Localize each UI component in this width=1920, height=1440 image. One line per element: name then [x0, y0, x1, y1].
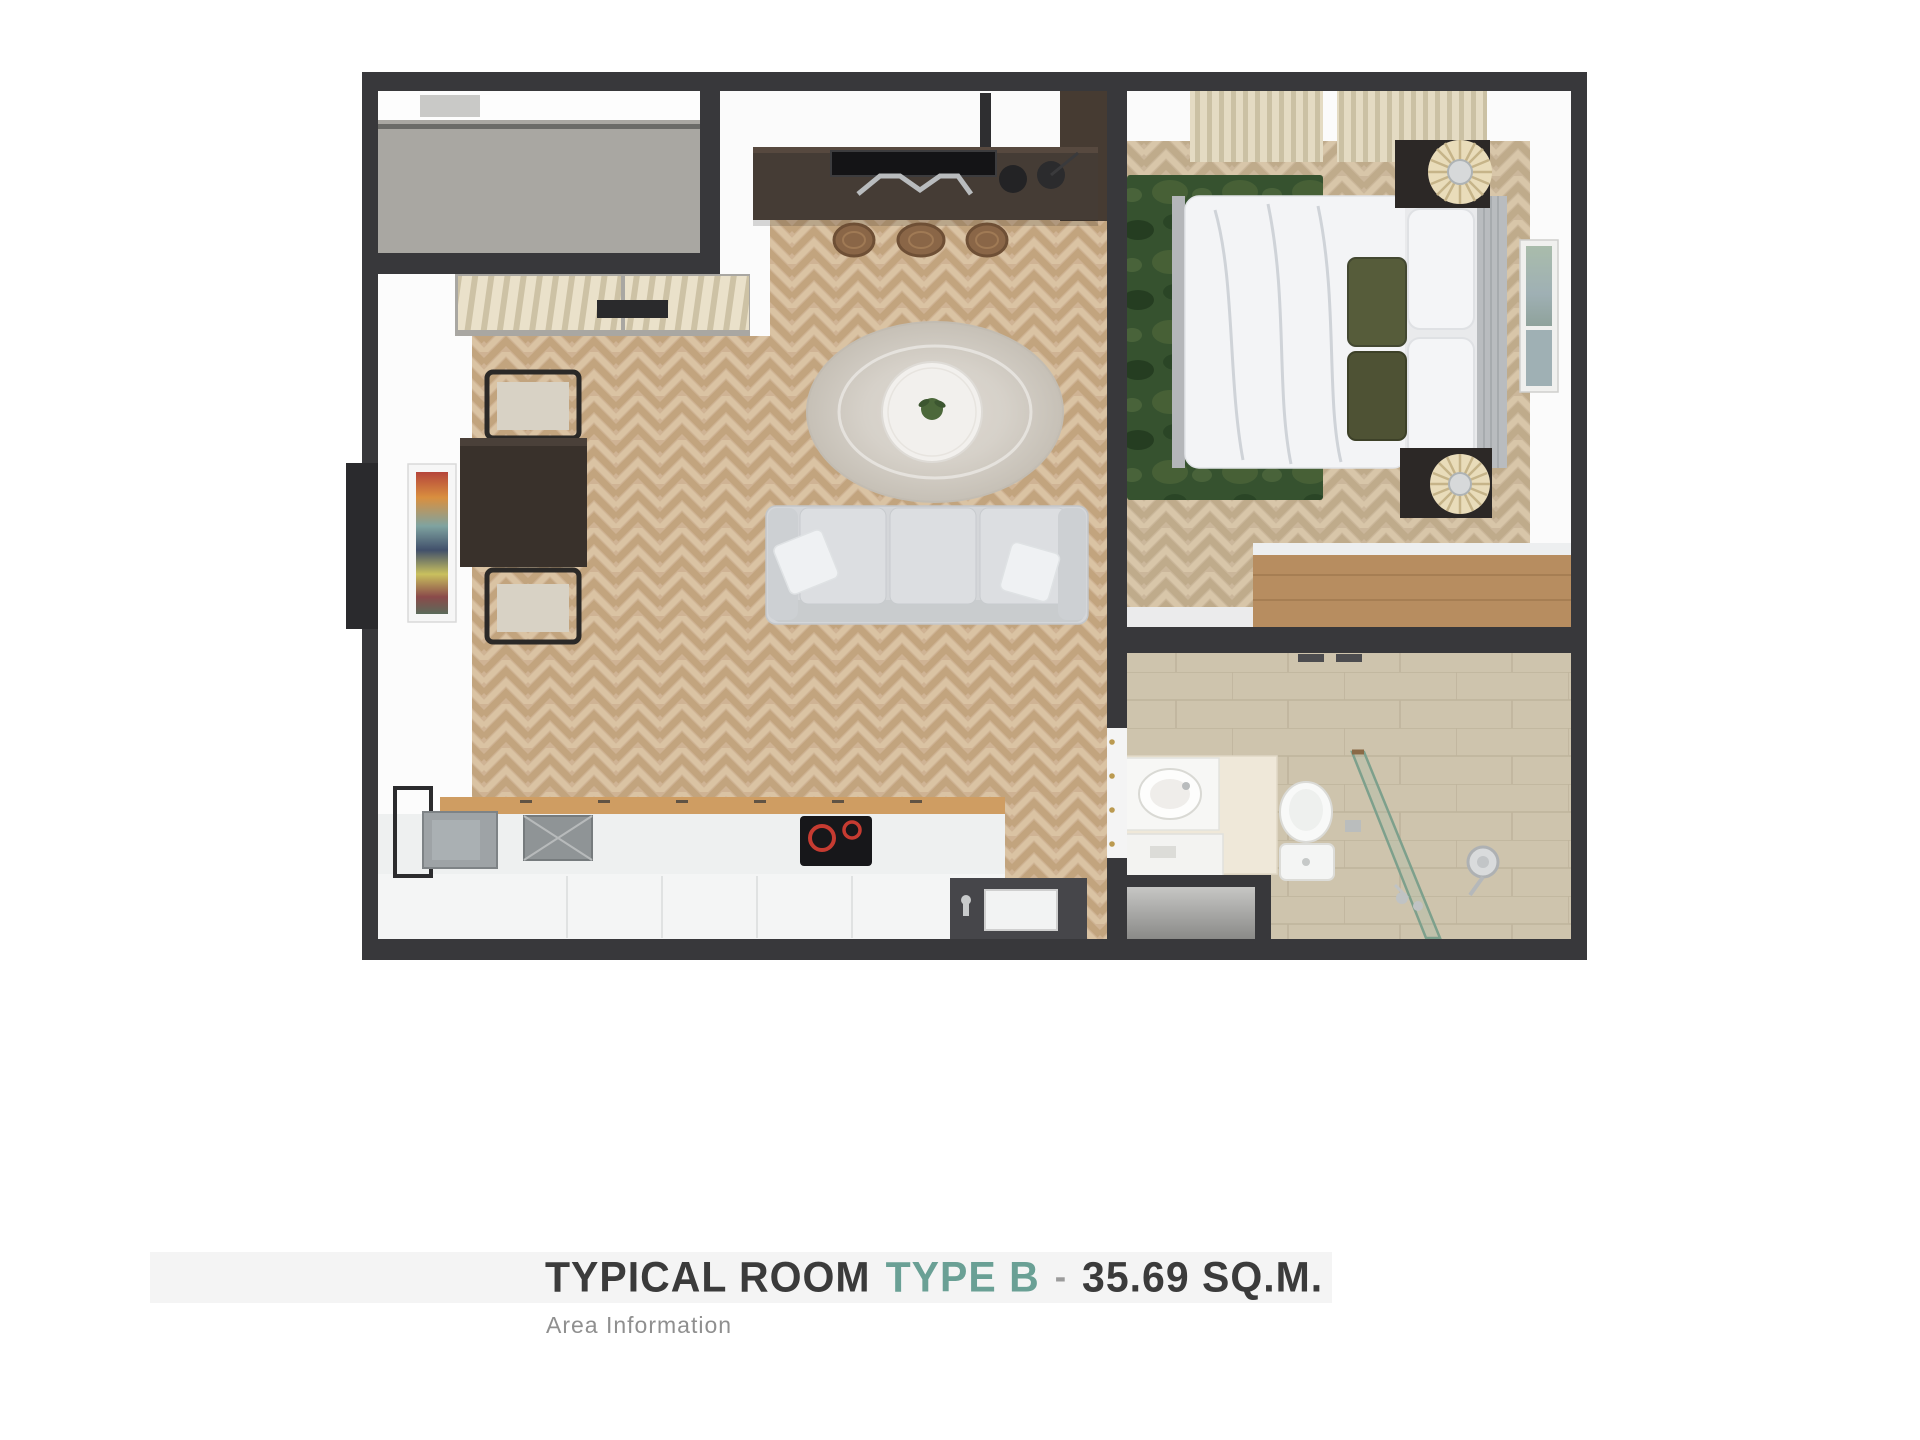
blind-panel-left	[458, 276, 621, 330]
table-lamp-shade	[999, 165, 1027, 193]
plan-title-separator: -	[1055, 1257, 1067, 1298]
rattan-lamp-bottom-center	[1449, 473, 1471, 495]
kitchen-counter-front	[378, 874, 1005, 939]
stool-2	[898, 224, 944, 256]
dresser-top	[1253, 543, 1571, 555]
wall-balcony-bottom	[362, 253, 720, 274]
stool-3	[967, 224, 1007, 256]
wall-niche-right	[1255, 875, 1271, 939]
kitchen	[378, 788, 1087, 939]
microwave-door	[432, 820, 480, 860]
basin-faucet	[1182, 782, 1190, 790]
toilet-seat	[1289, 789, 1323, 831]
bedroom-art-canvas-1	[1526, 246, 1552, 326]
towel-hook-1	[1298, 654, 1324, 662]
dining-chair-bottom-seat	[497, 584, 569, 632]
bed-frame-edge	[1172, 196, 1185, 468]
sofa-arm-right	[1058, 508, 1086, 620]
wicker-stools	[834, 224, 1007, 256]
sofa-cushion-2	[890, 508, 976, 604]
kitchen-counter-wood-strip	[440, 797, 1005, 814]
plan-title-area: 35.69 SQ.M.	[1082, 1253, 1323, 1302]
floor-plan	[0, 0, 1920, 1440]
hinge-3	[1109, 807, 1115, 813]
sliding-door-opening	[597, 300, 668, 318]
soap-dish	[1150, 846, 1176, 858]
bed	[1172, 196, 1507, 468]
hinge-1	[1109, 739, 1115, 745]
wardrobe-top-face	[768, 91, 1107, 147]
nightstand-bottom	[1400, 448, 1492, 518]
wall-bed-bath-divider	[1107, 627, 1587, 653]
pillow-olive-1	[1348, 258, 1406, 346]
curtain-panel-left	[1190, 88, 1323, 162]
toilet-flush-button	[1302, 858, 1310, 866]
balcony-door-track	[378, 124, 700, 129]
wall-right	[1571, 72, 1587, 960]
wall-niche-top	[1107, 875, 1271, 887]
pillow-white-2	[1408, 338, 1474, 458]
toilet-paper-holder	[1345, 820, 1361, 832]
hinge-2	[1109, 773, 1115, 779]
pillow-white-1	[1408, 209, 1474, 329]
vanity	[1123, 756, 1277, 876]
rattan-lamp-top-center	[1448, 160, 1472, 184]
sofa	[766, 506, 1088, 624]
service-niche	[1123, 887, 1255, 939]
dining-chair-top-seat	[497, 382, 569, 430]
hinge-4	[1109, 841, 1115, 847]
balcony-blinds	[458, 276, 749, 330]
wall-balcony-right	[700, 72, 720, 274]
plan-title: TYPICAL ROOM TYPE B - 35.69 SQ.M.	[545, 1251, 1323, 1304]
wall-art-bedroom	[1520, 240, 1558, 392]
bathroom-door-leaf	[1107, 728, 1127, 858]
dining-table-edge	[460, 438, 587, 446]
pillow-olive-2	[1348, 352, 1406, 440]
plan-title-room: TYPICAL ROOM	[545, 1253, 871, 1302]
bedroom-ledge	[1127, 607, 1253, 627]
wall-art-living	[408, 464, 456, 622]
plan-title-type: TYPE B	[886, 1253, 1040, 1302]
kitchen-sink-basin	[985, 890, 1057, 930]
nightstand-top	[1395, 140, 1492, 208]
stool-1	[834, 224, 874, 256]
page: TYPICAL ROOM TYPE B - 35.69 SQ.M. Area I…	[0, 0, 1920, 1440]
towel-hook-2	[1336, 654, 1362, 662]
tv-screen	[831, 151, 996, 176]
bedroom-art-canvas-2	[1526, 330, 1552, 386]
balcony-concrete-floor	[378, 120, 700, 253]
dining-table	[460, 438, 587, 567]
dresser	[1253, 543, 1571, 627]
wall-top	[362, 72, 1587, 91]
wardrobe-side-panel	[980, 93, 991, 147]
floor-tap-2	[1413, 901, 1423, 911]
kitchen-faucet-stem	[963, 900, 969, 916]
wall-bottom	[362, 939, 1587, 960]
balcony-unit	[420, 95, 480, 117]
entrance-door	[346, 463, 378, 629]
art-canvas	[416, 472, 448, 614]
shower-head-center	[1477, 856, 1489, 868]
plan-subtitle: Area Information	[546, 1312, 732, 1339]
